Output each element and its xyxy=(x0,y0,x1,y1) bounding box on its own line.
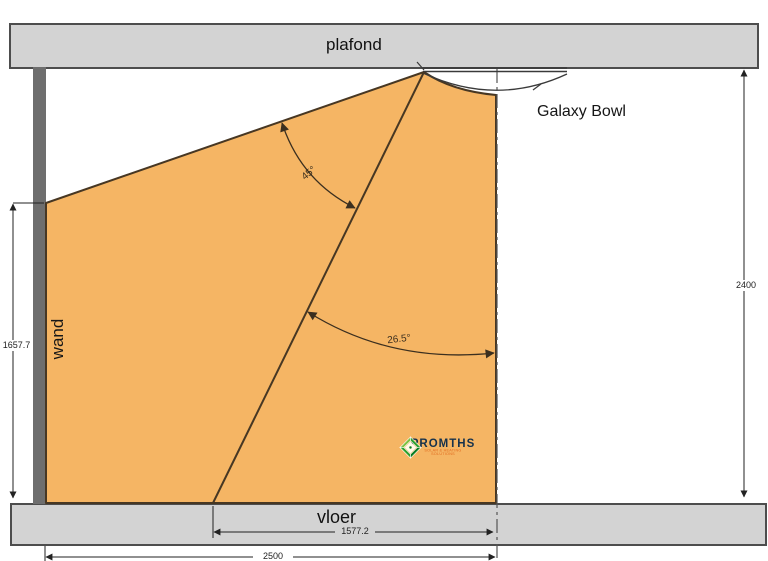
floor-label: vloer xyxy=(317,507,356,528)
ceiling-slab xyxy=(10,24,758,68)
wall-label: wand xyxy=(48,315,66,363)
dim-beam-offset-value: 1577.2 xyxy=(335,526,375,537)
dim-total-width-value: 2500 xyxy=(253,551,293,561)
fixture-label: Galaxy Bowl xyxy=(537,103,626,121)
diagram-canvas: plafond wand vloer Galaxy Bowl 45° 26.5°… xyxy=(0,0,768,561)
fixture-plate xyxy=(423,68,567,72)
floor-slab xyxy=(11,504,766,545)
logo-tagline-text: SOLAR & HEATING SOLUTIONS xyxy=(416,449,471,456)
dim-wall-height-value: 1657.7 xyxy=(0,340,33,351)
wall-bar xyxy=(33,67,46,504)
dim-room-height-value: 2400 xyxy=(729,280,763,291)
technical-drawing xyxy=(0,0,768,561)
logo: PROMTHS SOLAR & HEATING SOLUTIONS xyxy=(399,436,487,461)
ceiling-label: plafond xyxy=(326,35,382,55)
